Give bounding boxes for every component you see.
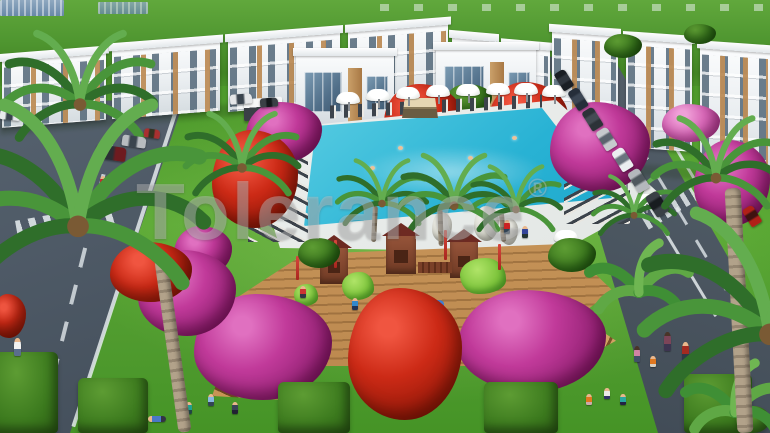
child-on-lawn — [208, 394, 214, 406]
sun-umbrella — [336, 92, 360, 104]
box-hedge — [78, 378, 148, 433]
palm-fronds — [654, 118, 770, 205]
play-bridge — [418, 262, 452, 273]
distant-city-buildings — [98, 2, 148, 14]
registered-trademark-symbol: ® — [528, 173, 549, 203]
roof-slab — [293, 48, 397, 56]
person-lying-on-lawn — [148, 416, 166, 422]
child-on-playground — [300, 286, 306, 298]
child-on-lawn — [586, 394, 592, 405]
child-on-playground — [352, 298, 358, 310]
sun-umbrella — [456, 84, 480, 96]
child-on-lawn — [620, 394, 626, 405]
watermark: Tolerance® — [136, 172, 549, 252]
palm-tree — [640, 200, 770, 433]
box-hedge — [278, 382, 350, 433]
resort-aerial-render: Tolerance® — [0, 0, 770, 433]
box-hedge — [0, 352, 58, 433]
sun-umbrella — [486, 83, 510, 95]
spiral-slide — [342, 272, 374, 300]
sun-umbrella — [514, 83, 538, 95]
distant-city-buildings — [0, 0, 64, 16]
box-hedge — [484, 382, 558, 433]
roof-slab — [433, 42, 539, 50]
child-on-lawn — [604, 388, 610, 399]
child-on-lawn — [232, 402, 238, 414]
swimmer — [512, 136, 517, 140]
distant-farm-structures — [380, 4, 770, 11]
sun-umbrella — [426, 85, 450, 97]
sun-umbrella — [396, 87, 420, 99]
car — [230, 93, 253, 105]
palm-fronds — [644, 213, 770, 391]
watermark-text: Tolerance — [136, 167, 526, 256]
sun-umbrella — [366, 89, 390, 101]
car — [260, 97, 279, 107]
flag-post — [296, 256, 299, 280]
